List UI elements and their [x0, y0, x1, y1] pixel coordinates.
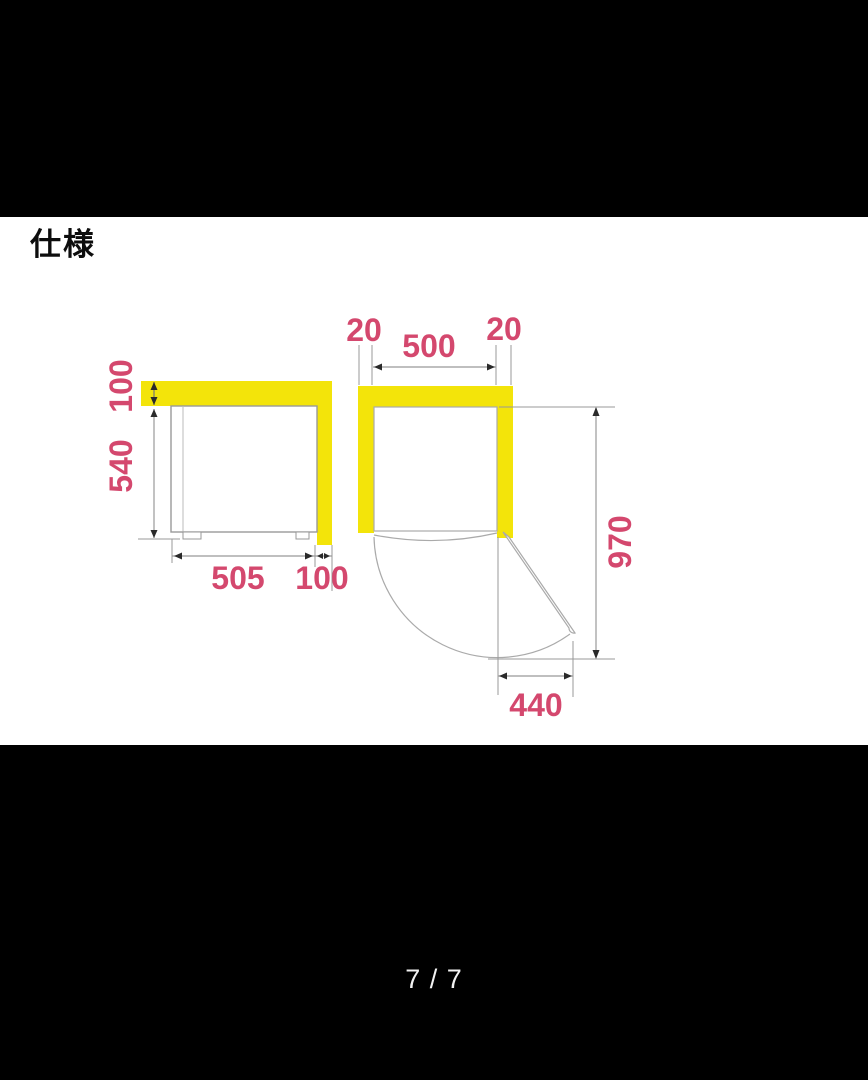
page-indicator: 7 / 7	[0, 964, 868, 995]
dim-label-side-height: 540	[103, 426, 139, 506]
side-rear-clearance-highlight	[317, 406, 332, 545]
dim-label-side-top-clearance: 100	[103, 346, 139, 426]
side-foot-left	[183, 532, 201, 539]
top-clearance-highlight	[358, 386, 513, 407]
image-viewer: 仕様	[0, 0, 868, 1080]
side-top-clearance-highlight	[141, 381, 332, 406]
dim-label-door-swing: 440	[496, 687, 576, 723]
side-body-outline	[171, 406, 317, 532]
screenshot-root: { "image_viewer": { "page_indicator": "7…	[0, 0, 868, 1080]
open-door	[503, 532, 575, 633]
dim-label-top-right-clearance: 20	[464, 311, 544, 347]
left-clearance-highlight	[358, 407, 374, 533]
dim-label-depth-door-open: 970	[602, 502, 638, 582]
right-clearance-highlight	[497, 407, 513, 538]
door-swing-arc	[374, 537, 570, 658]
top-view-drawing	[358, 345, 615, 697]
spec-image-panel[interactable]: 仕様	[0, 217, 868, 745]
door-front-edge	[374, 533, 497, 541]
dim-label-side-rear-clearance: 100	[267, 560, 377, 596]
top-body-outline	[374, 407, 497, 531]
side-foot-right	[296, 532, 309, 539]
